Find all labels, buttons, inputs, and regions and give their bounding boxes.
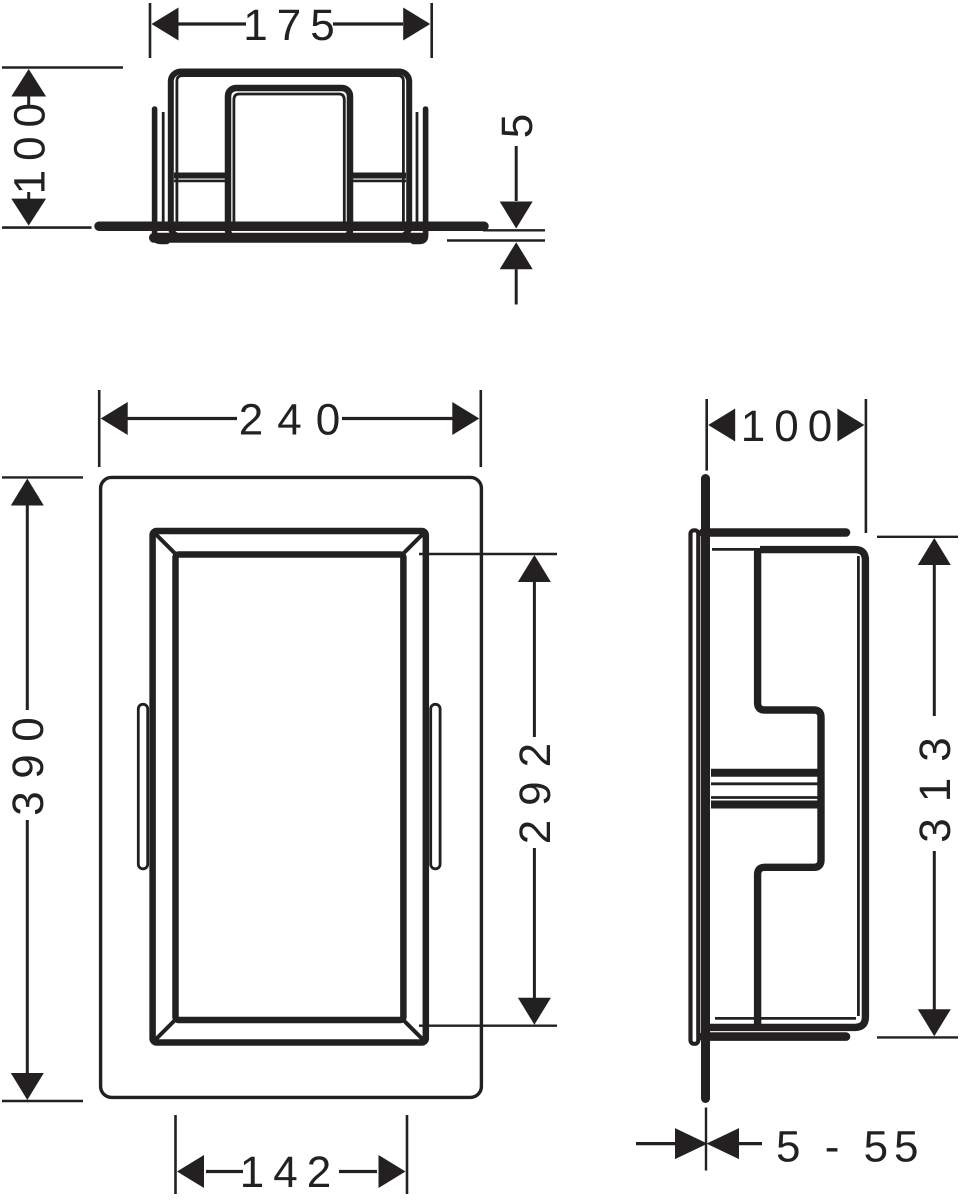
svg-text:100: 100 [741,402,841,451]
svg-text:142: 142 [240,1148,340,1197]
svg-text:292: 292 [511,729,560,844]
svg-text:5: 5 [493,105,542,138]
svg-text:313: 313 [911,721,960,842]
svg-text:100: 100 [6,94,55,194]
svg-text:175: 175 [243,1,343,50]
svg-text:390: 390 [4,705,53,816]
svg-text:5 - 55: 5 - 55 [776,1123,925,1172]
svg-text:240: 240 [239,396,354,445]
